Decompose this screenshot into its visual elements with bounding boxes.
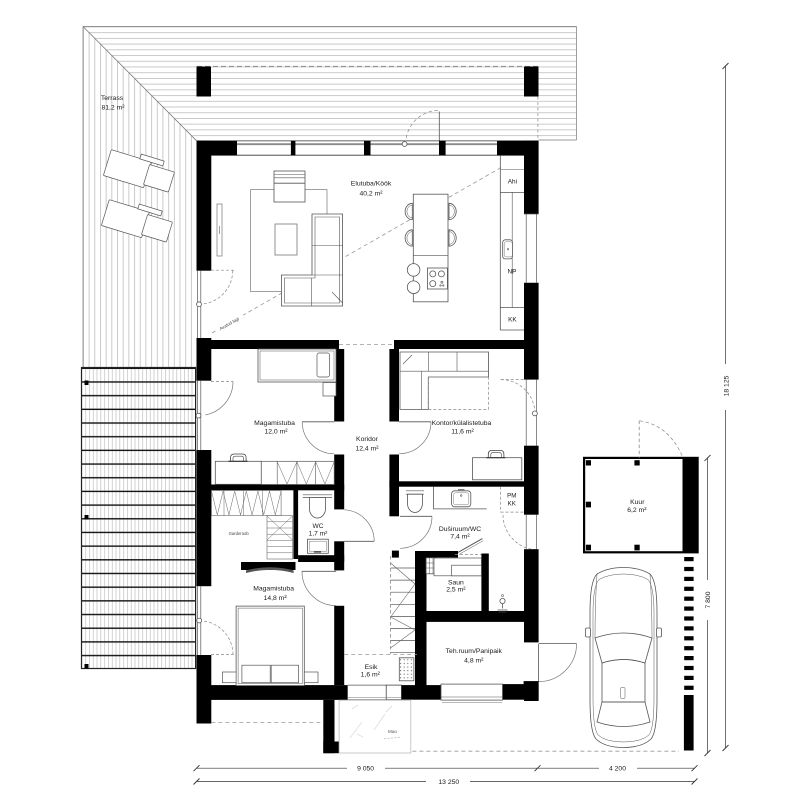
svg-text:Koridor: Koridor — [356, 436, 379, 443]
svg-text:Mao: Mao — [388, 729, 397, 734]
svg-text:Esik: Esik — [365, 664, 378, 671]
svg-text:12,0 m²: 12,0 m² — [264, 428, 288, 435]
svg-text:Magamistuba: Magamistuba — [254, 420, 295, 427]
svg-text:Duširuum/WC: Duširuum/WC — [439, 526, 481, 533]
svg-text:1,6 m²: 1,6 m² — [361, 672, 381, 679]
svg-text:Garderoob: Garderoob — [229, 531, 250, 536]
svg-text:6,2 m²: 6,2 m² — [627, 507, 647, 514]
svg-text:Ahi: Ahi — [508, 178, 517, 185]
svg-text:4,8 m²: 4,8 m² — [464, 658, 484, 665]
svg-text:KK: KK — [508, 316, 517, 323]
svg-text:18 125: 18 125 — [723, 375, 730, 396]
svg-text:KK: KK — [508, 501, 517, 508]
svg-text:WC: WC — [313, 523, 324, 530]
svg-text:7 800: 7 800 — [705, 591, 712, 608]
svg-text:Teh.ruum/Panipaik: Teh.ruum/Panipaik — [446, 648, 503, 655]
svg-text:2,5 m²: 2,5 m² — [446, 587, 466, 594]
svg-text:7,4 m²: 7,4 m² — [450, 534, 470, 541]
svg-text:12,4 m²: 12,4 m² — [355, 446, 379, 453]
svg-text:40,2 m²: 40,2 m² — [359, 191, 383, 198]
svg-text:13 250: 13 250 — [438, 779, 459, 786]
svg-text:Saun: Saun — [448, 580, 464, 587]
svg-text:9 050: 9 050 — [357, 766, 374, 773]
svg-text:4 200: 4 200 — [609, 766, 626, 773]
svg-text:1,7 m²: 1,7 m² — [309, 531, 328, 538]
svg-text:Terrass: Terrass — [101, 95, 124, 102]
svg-text:Kuur: Kuur — [630, 499, 645, 506]
svg-text:81,2 m²: 81,2 m² — [101, 105, 125, 112]
svg-text:Kontor/külalistetuba: Kontor/külalistetuba — [432, 420, 492, 427]
svg-text:14,8 m²: 14,8 m² — [264, 595, 288, 602]
svg-text:11,6 m²: 11,6 m² — [451, 428, 474, 435]
svg-text:PM: PM — [507, 493, 516, 500]
svg-text:Magamistuba: Magamistuba — [253, 586, 294, 593]
svg-text:Elutuba/Köök: Elutuba/Köök — [351, 181, 392, 188]
